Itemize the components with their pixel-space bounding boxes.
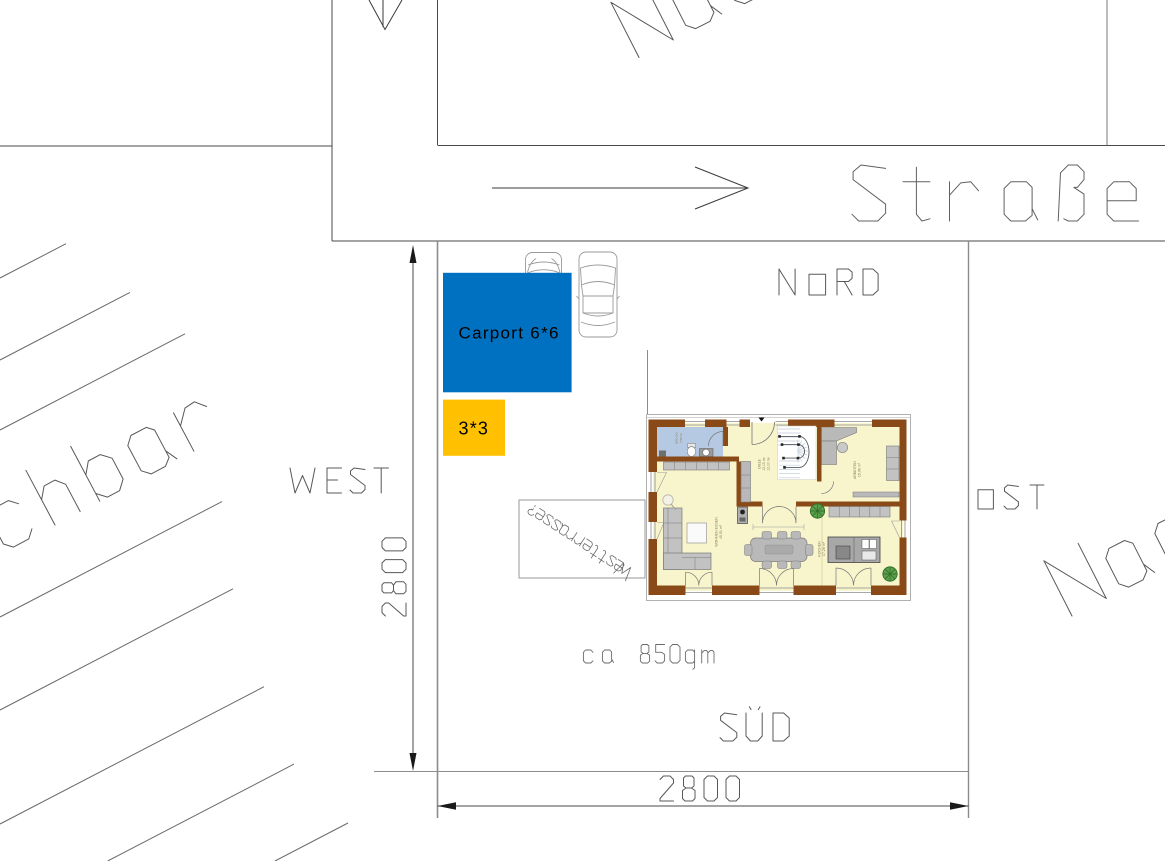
- svg-text:15,96 m²: 15,96 m²: [857, 462, 861, 477]
- svg-text:45,51 m²: 45,51 m²: [719, 524, 723, 539]
- svg-text:12,00 m²: 12,00 m²: [766, 456, 770, 470]
- svg-text:17,26 m²: 17,26 m²: [822, 541, 826, 556]
- svg-text:12,15 m²: 12,15 m²: [762, 456, 766, 470]
- svg-text:KOCHEN: KOCHEN: [818, 541, 822, 557]
- svg-text:WOHNEN ESSEN: WOHNEN ESSEN: [715, 517, 719, 547]
- svg-text:DIELE: DIELE: [758, 458, 762, 469]
- svg-text:Carport 6*6: Carport 6*6: [459, 324, 560, 343]
- svg-text:3*3: 3*3: [459, 419, 490, 439]
- svg-text:7,55 m²: 7,55 m²: [679, 433, 683, 443]
- svg-text:BAD DU: BAD DU: [675, 432, 679, 443]
- svg-text:ARBEITEN: ARBEITEN: [853, 461, 857, 479]
